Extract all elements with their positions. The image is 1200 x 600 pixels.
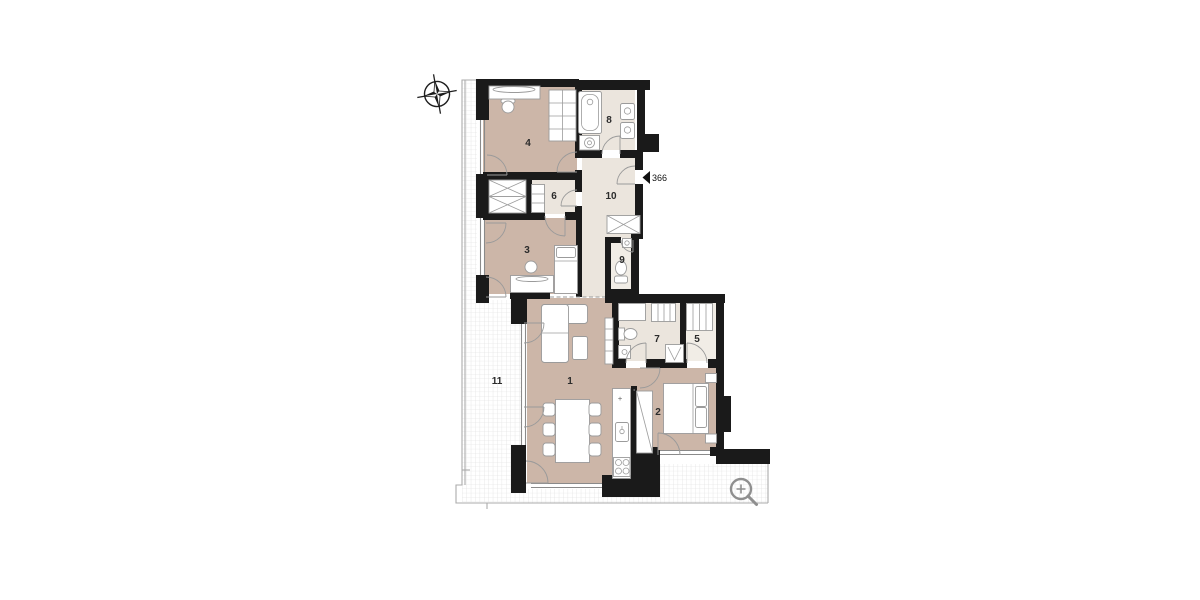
floor-plan-svg: + 1 2 — [0, 0, 1200, 600]
room7-shower — [666, 345, 684, 363]
room-label-5: 5 — [694, 334, 700, 345]
room-label-2: 2 — [655, 407, 661, 418]
room-label-8: 8 — [606, 115, 612, 126]
room7-sink — [619, 346, 631, 359]
kitchen-fixture-mark: + — [618, 396, 622, 403]
entry-marker-label: 366 — [652, 173, 667, 183]
radiator — [605, 318, 613, 364]
room3-bed — [555, 246, 578, 294]
room-10-floor-lower — [582, 237, 605, 297]
hallway-wardrobe — [607, 216, 640, 234]
washing-machine — [580, 136, 600, 151]
bathtub — [579, 92, 602, 134]
room2-bed — [664, 374, 717, 444]
wardrobe-closets — [489, 180, 526, 213]
room5-shelves — [687, 304, 713, 331]
room7-toilet — [619, 328, 638, 340]
room2-wardrobe — [637, 391, 653, 453]
side-table — [573, 337, 588, 360]
room4-desk — [489, 86, 540, 99]
kitchen-counter: + — [613, 389, 631, 479]
dining-table — [543, 400, 601, 463]
entry-door-marker: 366 — [643, 171, 668, 184]
room-label-4: 4 — [525, 138, 531, 149]
room-label-9: 9 — [619, 255, 625, 266]
room-label-6: 6 — [551, 191, 557, 202]
room-label-3: 3 — [524, 245, 530, 256]
room4-bed — [549, 90, 576, 141]
wc-sink — [623, 239, 632, 248]
room-label-10: 10 — [605, 191, 617, 202]
room6-cabinet — [532, 185, 545, 213]
north-compass-icon — [414, 71, 460, 117]
room-label-1: 1 — [567, 376, 573, 387]
room-label-11: 11 — [492, 376, 503, 387]
room-label-7: 7 — [654, 334, 660, 345]
entry-arrow-icon — [643, 171, 651, 184]
room4-chair — [501, 99, 515, 113]
floor-plan-page: + 1 2 — [0, 0, 1200, 600]
